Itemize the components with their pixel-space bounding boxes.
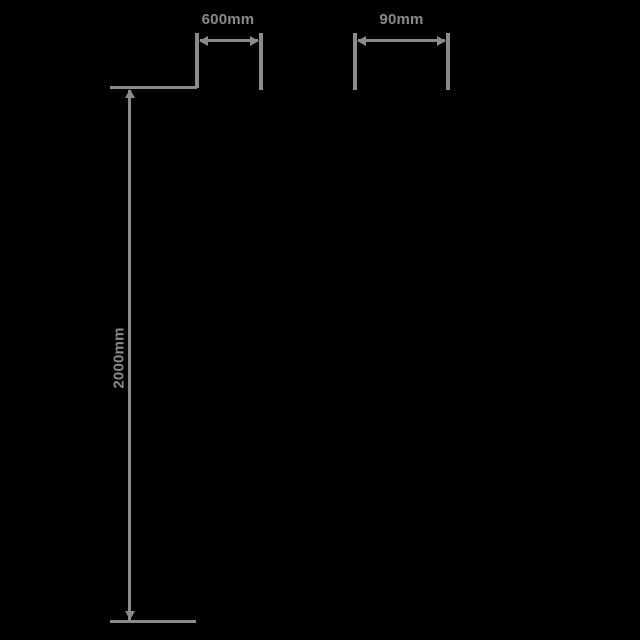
depth-dimension-label: 90mm: [355, 12, 448, 27]
depth-arrowhead-right-icon: [437, 36, 446, 46]
depth-extension-bar-right: [446, 33, 450, 90]
width-arrowhead-left-icon: [199, 36, 208, 46]
height-dimension-label-text: 2000mm: [112, 327, 127, 388]
height-arrowhead-down-icon: [125, 611, 135, 620]
dimension-diagram: 600mm 90mm 2000mm: [0, 0, 640, 640]
width-dimension-label: 600mm: [192, 12, 264, 27]
depth-dimension-line: [358, 39, 445, 42]
depth-arrowhead-left-icon: [357, 36, 366, 46]
width-extension-bar-right: [259, 33, 263, 90]
height-extension-line-top: [110, 86, 197, 89]
height-extension-line-bottom: [110, 620, 196, 623]
height-arrowhead-up-icon: [125, 89, 135, 98]
height-dimension-line: [128, 90, 131, 620]
width-arrowhead-right-icon: [250, 36, 259, 46]
